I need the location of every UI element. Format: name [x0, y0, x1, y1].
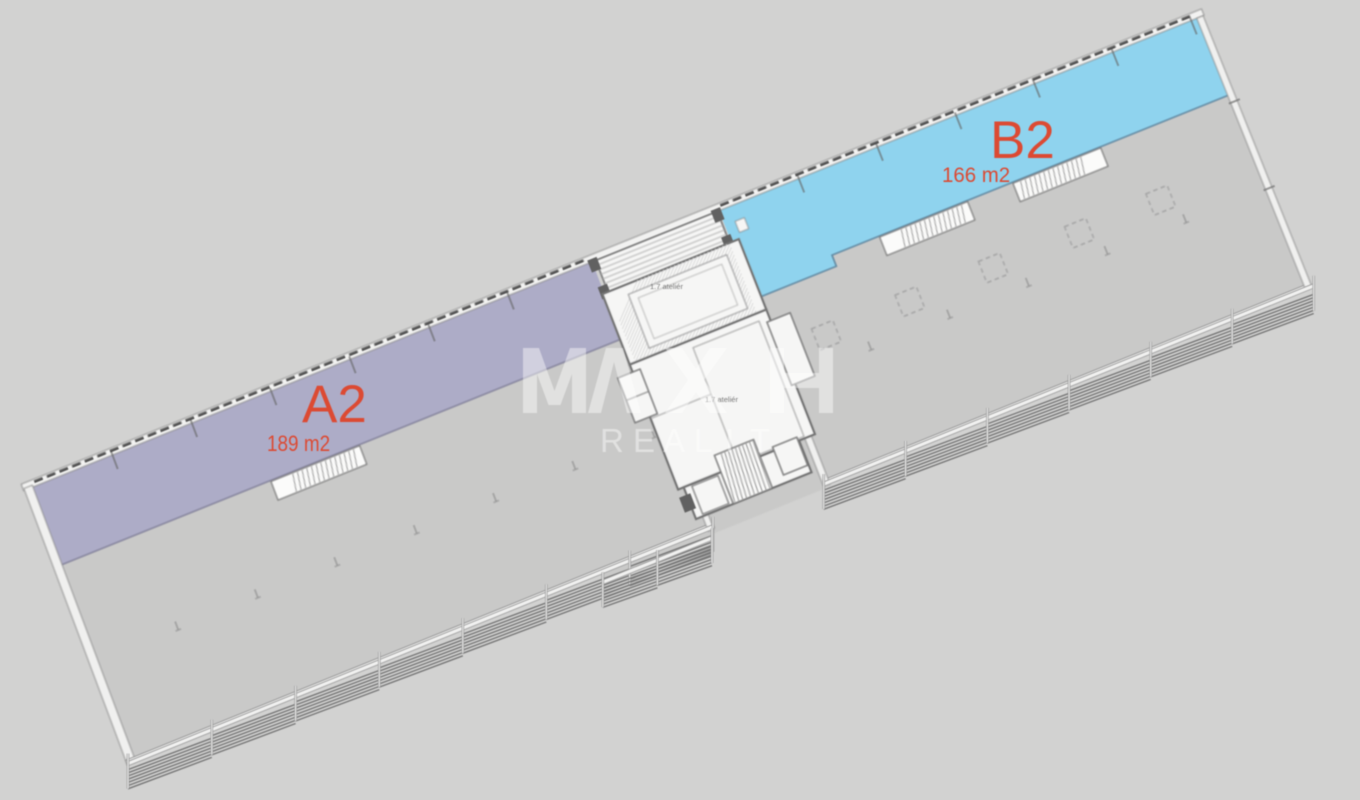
svg-text:T: T — [750, 422, 770, 459]
svg-text:E: E — [633, 422, 655, 459]
svg-text:1.7 ateliér: 1.7 ateliér — [650, 282, 683, 291]
svg-text:I: I — [725, 422, 734, 459]
svg-text:L: L — [694, 422, 712, 459]
svg-text:R: R — [600, 422, 624, 459]
svg-text:A: A — [663, 422, 685, 459]
